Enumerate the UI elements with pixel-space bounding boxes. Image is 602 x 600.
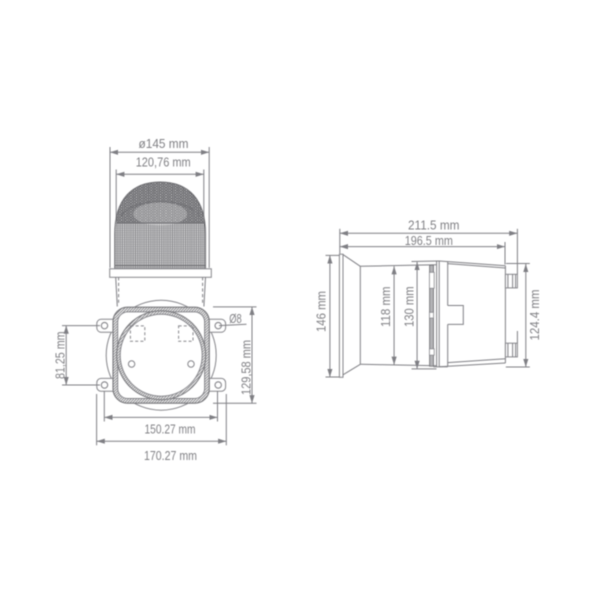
svg-text:146 mm: 146 mm <box>314 291 329 332</box>
svg-text:ø145 mm: ø145 mm <box>139 136 189 151</box>
svg-text:118 mm: 118 mm <box>378 286 393 327</box>
svg-text:211.5 mm: 211.5 mm <box>408 218 460 233</box>
svg-text:120,76 mm: 120,76 mm <box>136 155 191 170</box>
svg-text:124.4 mm: 124.4 mm <box>527 289 542 340</box>
svg-text:129,58 mm: 129,58 mm <box>239 340 254 395</box>
svg-text:Ø8: Ø8 <box>229 311 242 326</box>
svg-text:150.27 mm: 150.27 mm <box>145 422 196 437</box>
svg-text:81,25 mm: 81,25 mm <box>53 331 68 379</box>
svg-text:170.27 mm: 170.27 mm <box>144 448 197 463</box>
svg-text:130 mm: 130 mm <box>402 286 417 327</box>
svg-text:196.5 mm: 196.5 mm <box>405 233 453 248</box>
